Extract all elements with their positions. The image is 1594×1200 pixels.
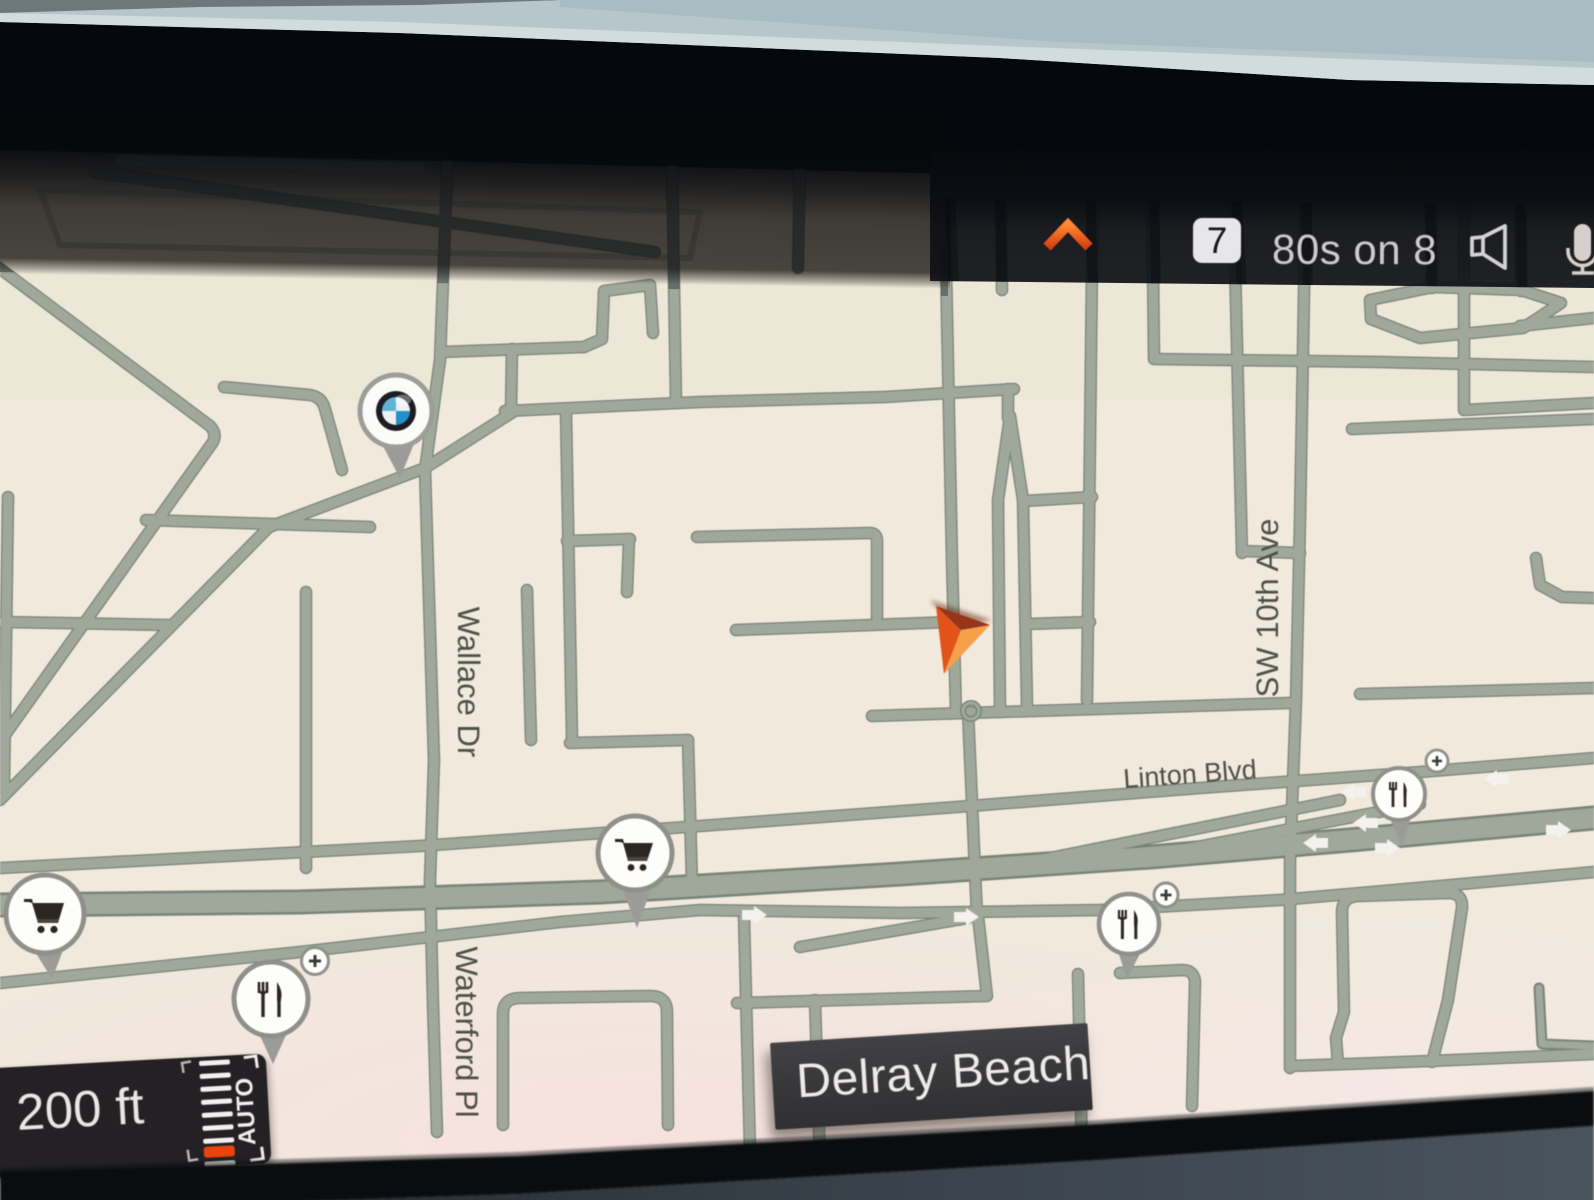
svg-text:SW 10th Ave: SW 10th Ave [1250, 519, 1285, 698]
svg-text:Wallace Dr: Wallace Dr [451, 607, 486, 757]
